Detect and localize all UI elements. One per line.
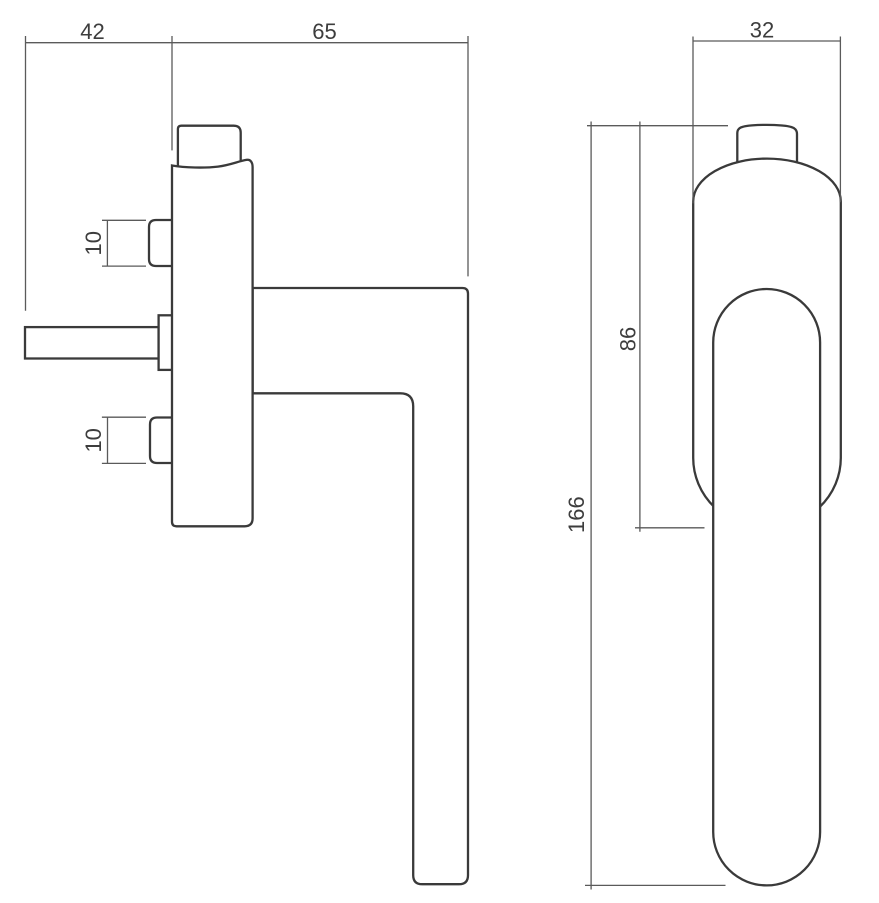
svg-text:10: 10 (81, 231, 106, 255)
svg-text:42: 42 (80, 19, 104, 44)
svg-text:166: 166 (564, 496, 589, 533)
svg-text:86: 86 (615, 327, 640, 351)
svg-text:32: 32 (750, 17, 774, 42)
svg-text:65: 65 (312, 19, 336, 44)
svg-text:10: 10 (81, 428, 106, 452)
